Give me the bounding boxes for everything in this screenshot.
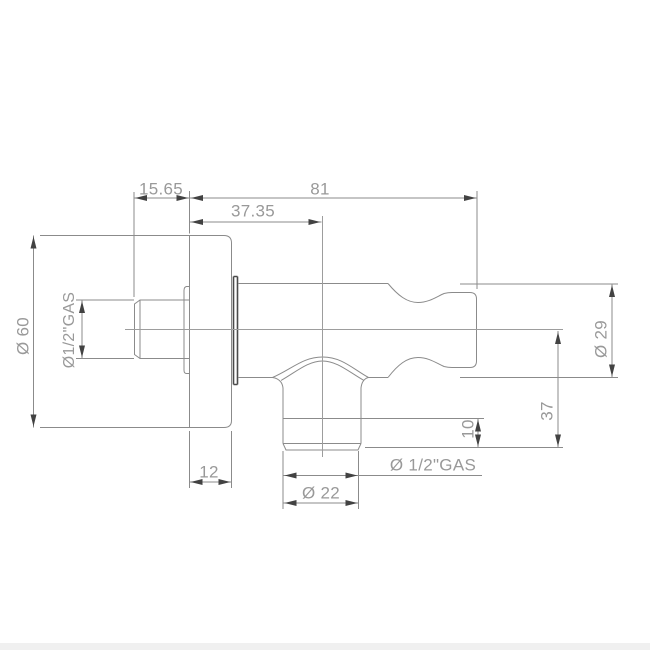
holder-cone-outline [388, 284, 477, 378]
dim-label-flange-to-outlet: 37.35 [231, 203, 275, 220]
dim-label-center-to-outlet-end: 37 [539, 401, 556, 421]
dim-label-outlet-thread-length: 10 [460, 419, 477, 439]
part-outline [135, 236, 477, 451]
dim-label-flange-diameter: Ø 60 [15, 317, 32, 355]
flange-outline [190, 236, 232, 428]
technical-drawing-canvas: 15.65 81 37.35 Ø 60 Ø1/2"GAS Ø 29 37 10 … [0, 0, 650, 650]
dim-label-body-diameter: Ø 29 [593, 320, 610, 358]
dim-label-flange-thickness: 12 [199, 464, 219, 481]
bottom-artifact-band [0, 643, 650, 650]
dim-label-outlet-diameter: Ø 22 [302, 485, 340, 502]
drawing-linework [0, 0, 650, 650]
dim-label-outlet-thread: Ø 1/2"GAS [390, 457, 476, 474]
dim-label-inlet-thread: Ø1/2"GAS [62, 292, 78, 369]
dim-label-overall-length: 81 [310, 181, 330, 198]
trim-ring [234, 277, 238, 385]
junction-fillets [273, 378, 369, 389]
dim-label-wall-to-flange: 15.65 [139, 181, 183, 198]
dimension-lines [34, 191, 619, 509]
centerlines [125, 216, 563, 457]
